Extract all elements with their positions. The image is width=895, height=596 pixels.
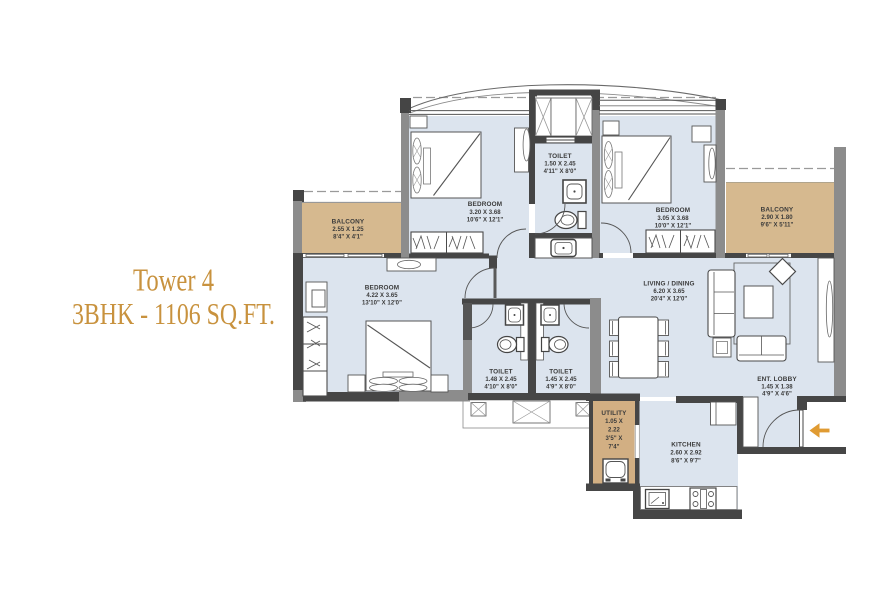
svg-text:TOILET: TOILET [548, 153, 572, 160]
svg-text:3BHK - 1106 SQ.FT.: 3BHK - 1106 SQ.FT. [72, 296, 275, 331]
svg-text:6.20 X 3.65: 6.20 X 3.65 [653, 289, 685, 295]
svg-text:BEDROOM: BEDROOM [468, 201, 502, 208]
svg-text:KITCHEN: KITCHEN [671, 442, 701, 449]
svg-text:TOILET: TOILET [489, 369, 513, 376]
svg-text:4'9" X 8'0": 4'9" X 8'0" [546, 384, 576, 390]
svg-text:1.48 X 2.45: 1.48 X 2.45 [485, 377, 517, 383]
svg-text:2.60 X 2.92: 2.60 X 2.92 [670, 451, 702, 457]
svg-text:4'10" X 8'0": 4'10" X 8'0" [484, 384, 517, 390]
svg-text:3.05 X 3.68: 3.05 X 3.68 [657, 216, 689, 222]
svg-text:3.20 X 3.68: 3.20 X 3.68 [469, 210, 501, 216]
svg-text:BEDROOM: BEDROOM [656, 207, 690, 214]
svg-text:3'5" X: 3'5" X [606, 436, 623, 442]
svg-text:8'6" X 9'7": 8'6" X 9'7" [671, 459, 701, 465]
svg-text:4.22 X 3.65: 4.22 X 3.65 [366, 293, 398, 299]
svg-text:LIVING / DINING: LIVING / DINING [643, 281, 694, 288]
svg-text:BEDROOM: BEDROOM [365, 285, 399, 292]
svg-text:9'6" X 5'11": 9'6" X 5'11" [761, 222, 794, 228]
svg-text:BALCONY: BALCONY [761, 207, 794, 214]
svg-text:13'10" X 12'0": 13'10" X 12'0" [362, 300, 402, 306]
svg-text:2.22: 2.22 [608, 428, 620, 434]
svg-text:10'6" X 12'1": 10'6" X 12'1" [467, 217, 504, 223]
svg-text:4'9" X 4'6": 4'9" X 4'6" [762, 392, 792, 398]
svg-text:BALCONY: BALCONY [332, 219, 365, 226]
svg-text:1.45 X 2.45: 1.45 X 2.45 [545, 377, 577, 383]
svg-text:1.45 X 1.38: 1.45 X 1.38 [761, 385, 793, 391]
svg-text:ENT. LOBBY: ENT. LOBBY [757, 376, 797, 383]
svg-text:10'0" X 12'1": 10'0" X 12'1" [655, 223, 692, 229]
svg-text:1.50 X 2.45: 1.50 X 2.45 [544, 162, 576, 168]
svg-text:Tower 4: Tower 4 [133, 262, 214, 298]
svg-text:1.05 X: 1.05 X [605, 419, 623, 425]
svg-text:2.90 X 1.80: 2.90 X 1.80 [761, 215, 793, 221]
svg-text:UTILITY: UTILITY [601, 410, 627, 417]
svg-text:4'11" X 8'0": 4'11" X 8'0" [544, 169, 577, 175]
svg-text:7'4": 7'4" [608, 444, 619, 450]
svg-text:8'4" X 4'1": 8'4" X 4'1" [333, 234, 363, 240]
svg-text:TOILET: TOILET [549, 369, 573, 376]
svg-text:2.55 X 1.25: 2.55 X 1.25 [332, 227, 364, 233]
svg-text:20'4" X 12'0": 20'4" X 12'0" [651, 296, 688, 302]
